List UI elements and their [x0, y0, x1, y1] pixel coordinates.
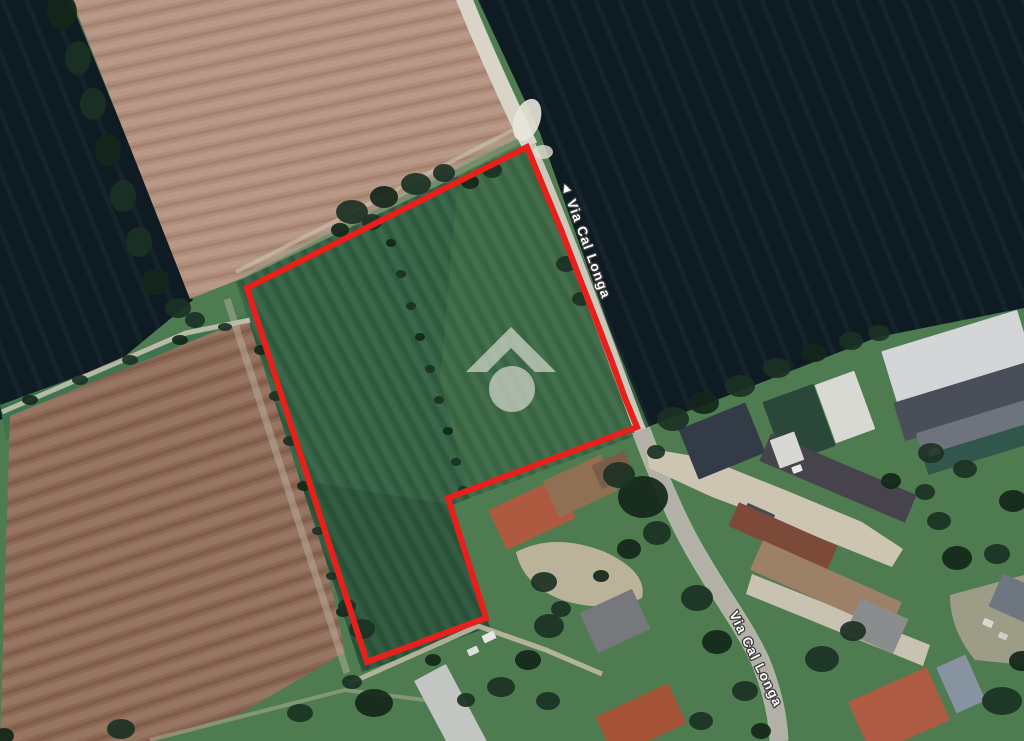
tree — [451, 458, 461, 466]
tree — [22, 395, 38, 405]
tree — [185, 312, 205, 328]
tree — [681, 585, 713, 611]
tree — [942, 546, 972, 570]
tree — [751, 723, 771, 739]
tree — [551, 601, 571, 617]
tree — [396, 270, 406, 278]
tree — [593, 570, 609, 582]
tree — [443, 427, 453, 435]
tree — [433, 164, 455, 182]
tree — [918, 443, 944, 463]
tree — [342, 675, 362, 689]
logo-circle-icon — [489, 366, 535, 412]
tree — [95, 134, 121, 166]
tree — [927, 512, 951, 530]
tree — [763, 358, 791, 378]
tree — [425, 365, 435, 373]
tree — [881, 473, 901, 489]
tree — [982, 687, 1022, 715]
tree — [110, 180, 136, 212]
tree — [172, 335, 188, 345]
tree — [617, 539, 641, 559]
tree — [536, 692, 560, 710]
tree — [287, 704, 313, 722]
tree — [355, 689, 393, 717]
tree — [386, 239, 396, 247]
tree — [218, 323, 232, 331]
tree — [805, 646, 839, 672]
tree — [142, 269, 170, 295]
map-canvas[interactable]: ◄ Via Cal Longa Via Cal Longa — [0, 0, 1024, 741]
tree — [401, 173, 431, 195]
tree — [732, 681, 758, 701]
tree — [839, 332, 863, 350]
tree — [415, 333, 425, 341]
tree — [531, 572, 557, 592]
tree — [643, 521, 671, 545]
tree — [840, 621, 866, 641]
tree — [868, 325, 890, 341]
tree — [689, 712, 713, 730]
tree — [725, 375, 755, 397]
tree — [122, 355, 138, 365]
tree — [370, 186, 398, 208]
tree — [80, 88, 106, 120]
satellite-map: ◄ Via Cal Longa Via Cal Longa — [0, 0, 1024, 741]
tree — [515, 650, 541, 670]
tree — [457, 693, 475, 707]
tree — [72, 375, 88, 385]
tree — [657, 407, 689, 431]
tree — [107, 719, 135, 739]
tree — [65, 41, 91, 75]
tree — [915, 484, 935, 500]
tree — [126, 227, 152, 257]
tree — [603, 462, 635, 488]
tree — [534, 614, 564, 638]
tree — [801, 344, 827, 362]
tree — [165, 298, 191, 318]
tree — [689, 392, 719, 414]
tree — [647, 445, 665, 459]
tree — [702, 630, 732, 654]
tree — [425, 654, 441, 666]
tree — [406, 302, 416, 310]
tree — [487, 677, 515, 697]
tree — [984, 544, 1010, 564]
tree — [953, 460, 977, 478]
tree — [434, 396, 444, 404]
